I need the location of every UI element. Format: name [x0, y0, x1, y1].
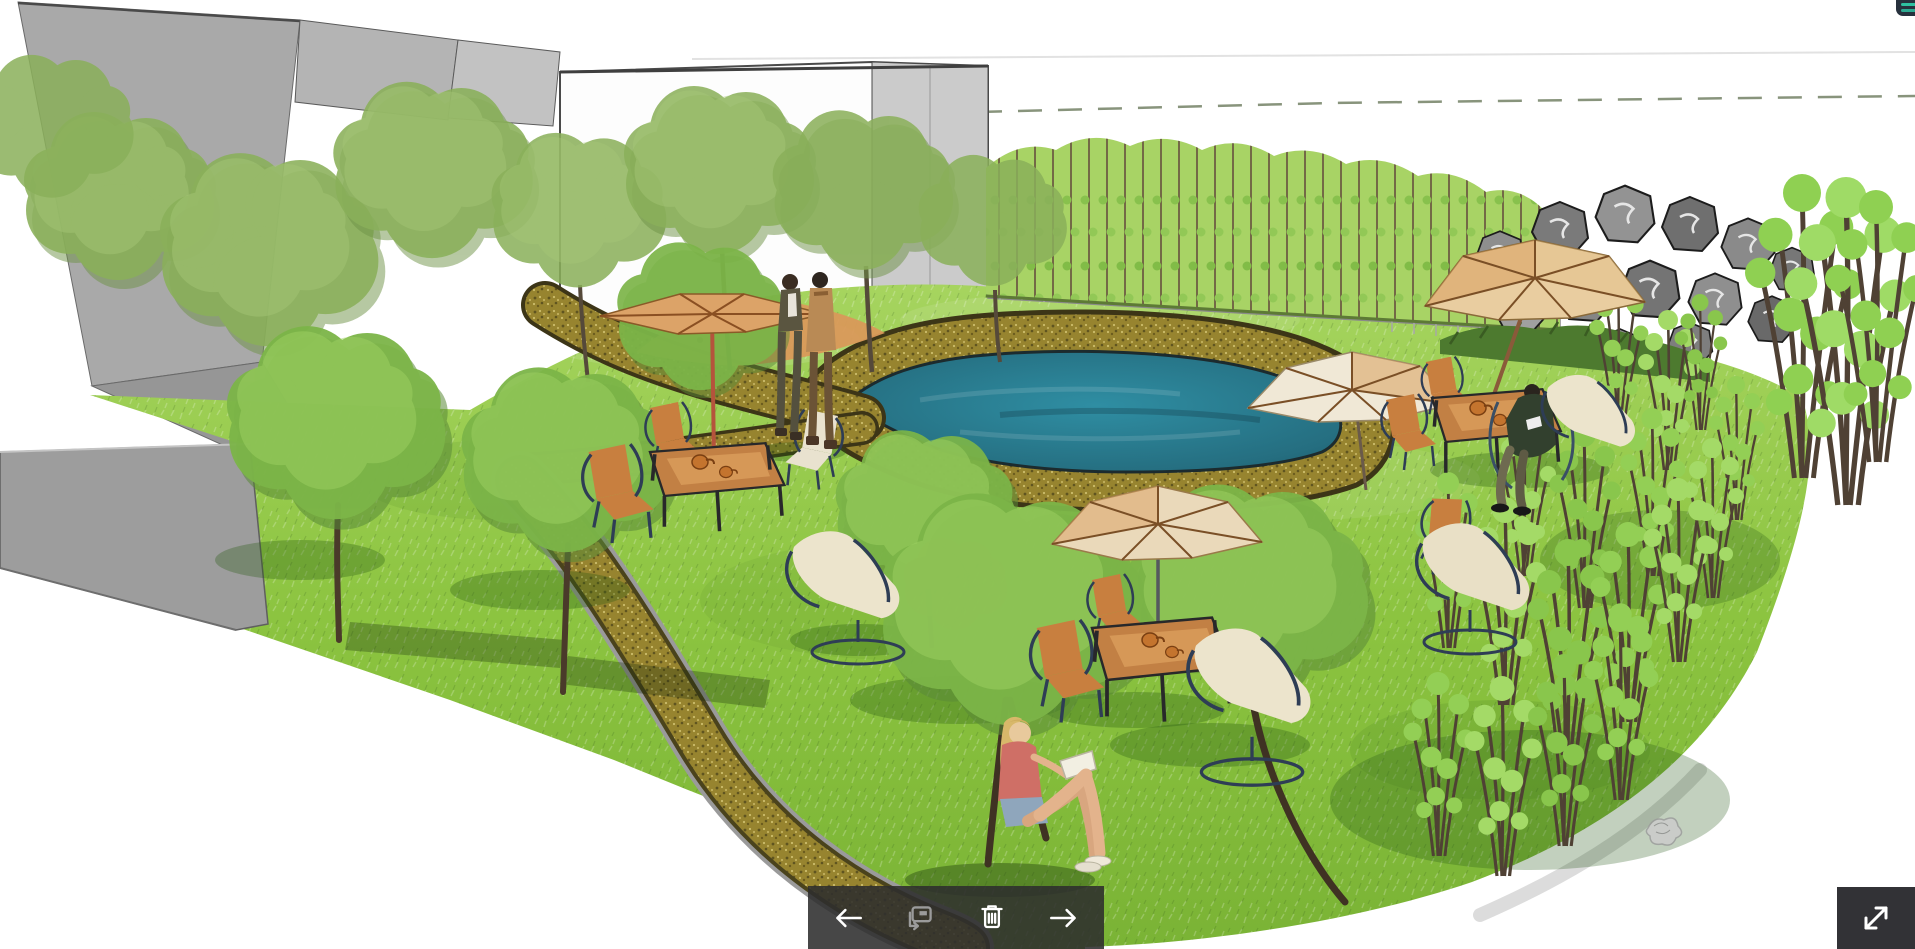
next-button[interactable]: [1042, 896, 1086, 940]
arrow-right-icon: [1046, 900, 1082, 936]
arrow-left-icon: [830, 900, 866, 936]
landscape-rendering: [0, 0, 1915, 949]
fullscreen-button[interactable]: [1837, 887, 1915, 949]
trash-icon: [974, 900, 1010, 936]
comment-annotation-button[interactable]: [898, 896, 942, 940]
expand-diagonal-icon: [1854, 896, 1898, 940]
delete-button[interactable]: [970, 896, 1014, 940]
menu-partial-icon: [1901, 3, 1915, 6]
comment-annotation-icon: [902, 900, 938, 936]
corner-menu-button-partial[interactable]: [1896, 0, 1915, 16]
viewer-toolbar: [808, 886, 1104, 949]
render-viewer: [0, 0, 1915, 949]
previous-button[interactable]: [826, 896, 870, 940]
